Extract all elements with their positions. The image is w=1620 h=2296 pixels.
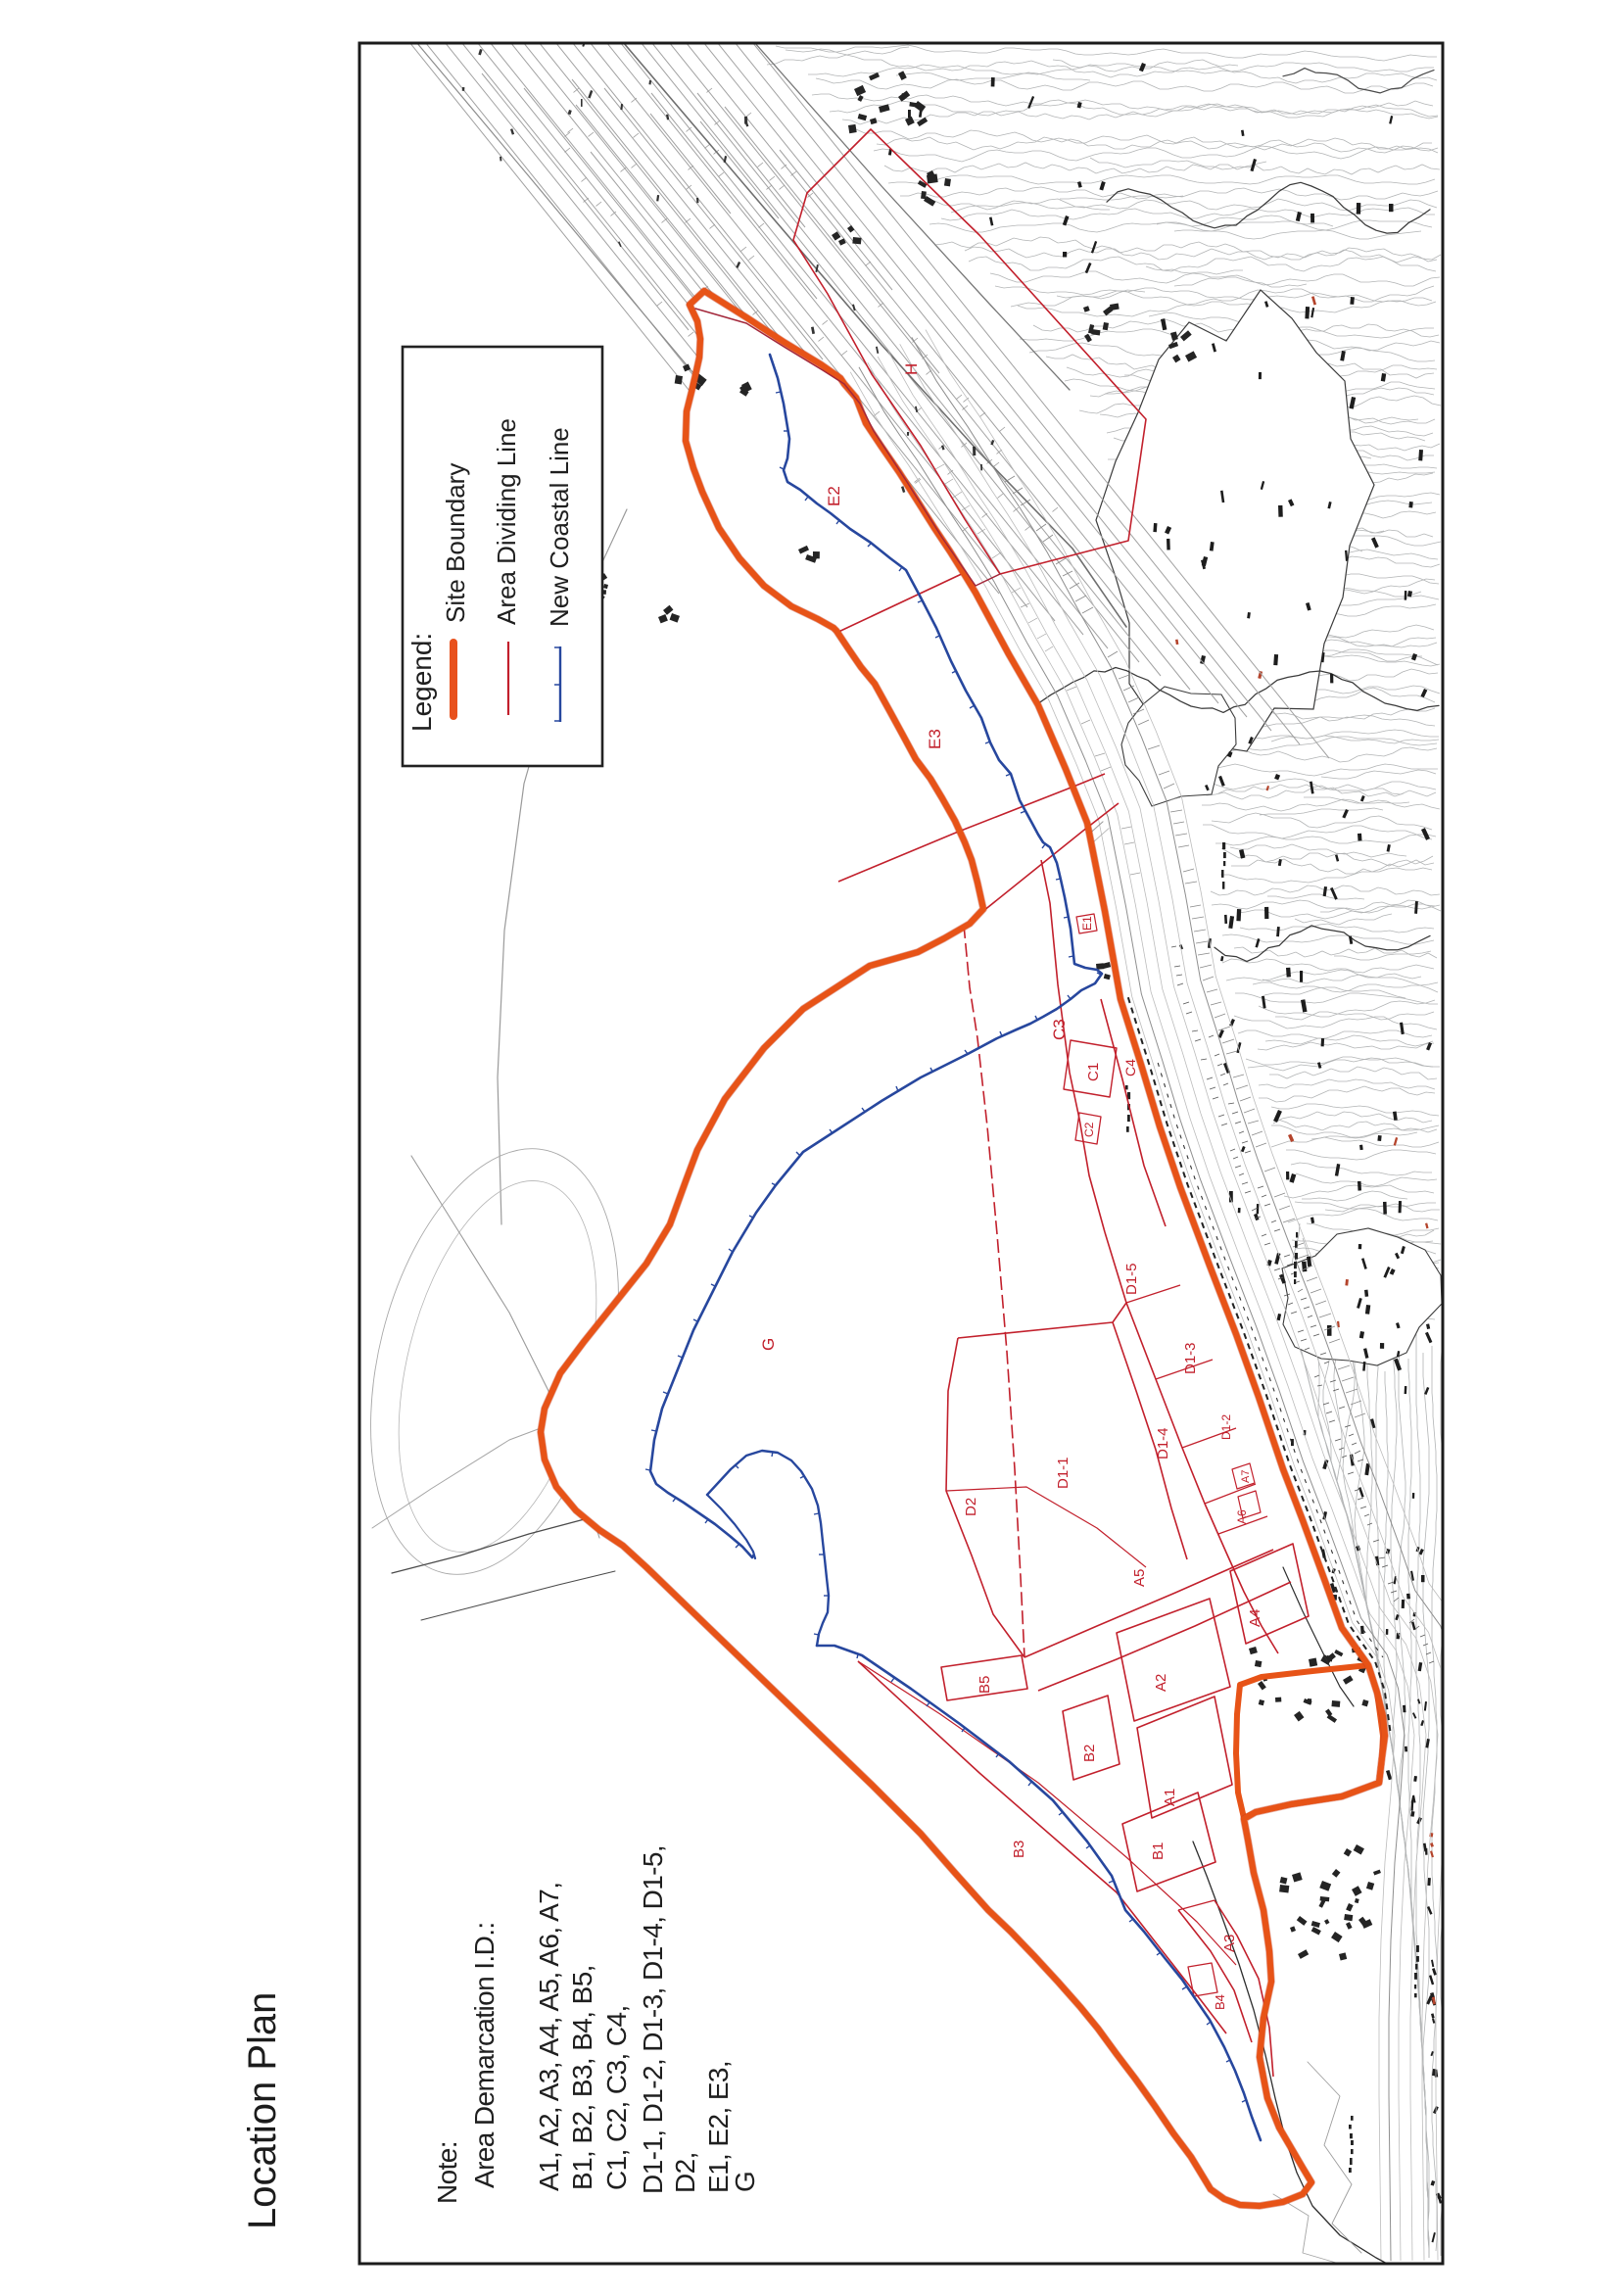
svg-text:D1-4: D1-4	[1155, 1427, 1171, 1459]
svg-text:Location Plan: Location Plan	[241, 1992, 284, 2229]
svg-text:A6: A6	[1235, 1509, 1249, 1524]
svg-text:A1: A1	[1162, 1789, 1178, 1806]
svg-text:E3: E3	[926, 729, 944, 749]
svg-text:D1-2: D1-2	[1219, 1414, 1233, 1440]
svg-text:B1, B2, B3, B4, B5,: B1, B2, B3, B4, B5,	[567, 1965, 597, 2190]
svg-text:A5: A5	[1131, 1569, 1148, 1587]
svg-text:B1: B1	[1150, 1842, 1167, 1860]
svg-text:D2: D2	[963, 1498, 979, 1516]
svg-text:Site Boundary: Site Boundary	[441, 463, 470, 623]
svg-text:B3: B3	[1011, 1841, 1027, 1858]
svg-text:D1-5: D1-5	[1123, 1263, 1140, 1295]
svg-text:New Coastal Line: New Coastal Line	[545, 427, 574, 627]
svg-text:A2: A2	[1153, 1674, 1169, 1692]
svg-text:C4: C4	[1122, 1059, 1138, 1076]
svg-text:Area Dividing Line: Area Dividing Line	[492, 418, 521, 625]
svg-text:C1, C2, C3, C4,: C1, C2, C3, C4,	[601, 2005, 632, 2190]
svg-text:A7: A7	[1240, 1470, 1252, 1483]
svg-text:D2,: D2,	[670, 2152, 700, 2193]
svg-text:B5: B5	[977, 1676, 993, 1694]
svg-text:C1: C1	[1085, 1063, 1102, 1081]
svg-text:Area Demarcation I.D.:: Area Demarcation I.D.:	[469, 1922, 500, 2188]
svg-text:B4: B4	[1213, 1994, 1227, 2010]
svg-text:G: G	[730, 2172, 760, 2192]
svg-text:A1, A2, A3, A4, A5, A6, A7,: A1, A2, A3, A4, A5, A6, A7,	[534, 1883, 564, 2191]
svg-text:B2: B2	[1081, 1745, 1098, 1762]
svg-text:E1: E1	[1080, 916, 1094, 931]
svg-text:C3: C3	[1050, 1019, 1069, 1040]
svg-text:D1-1: D1-1	[1055, 1457, 1072, 1489]
svg-text:Legend:: Legend:	[406, 633, 437, 732]
svg-text:A4: A4	[1247, 1609, 1263, 1627]
svg-text:G: G	[759, 1338, 778, 1351]
svg-text:H: H	[902, 363, 921, 375]
svg-text:A3: A3	[1221, 1935, 1238, 1952]
svg-text:C2: C2	[1082, 1122, 1096, 1137]
svg-text:D1-3: D1-3	[1182, 1342, 1199, 1374]
svg-text:Note:: Note:	[432, 2141, 462, 2204]
svg-text:E2: E2	[825, 486, 843, 506]
svg-text:D1-1, D1-2, D1-3, D1-4, D1-5,: D1-1, D1-2, D1-3, D1-4, D1-5,	[638, 1845, 668, 2194]
